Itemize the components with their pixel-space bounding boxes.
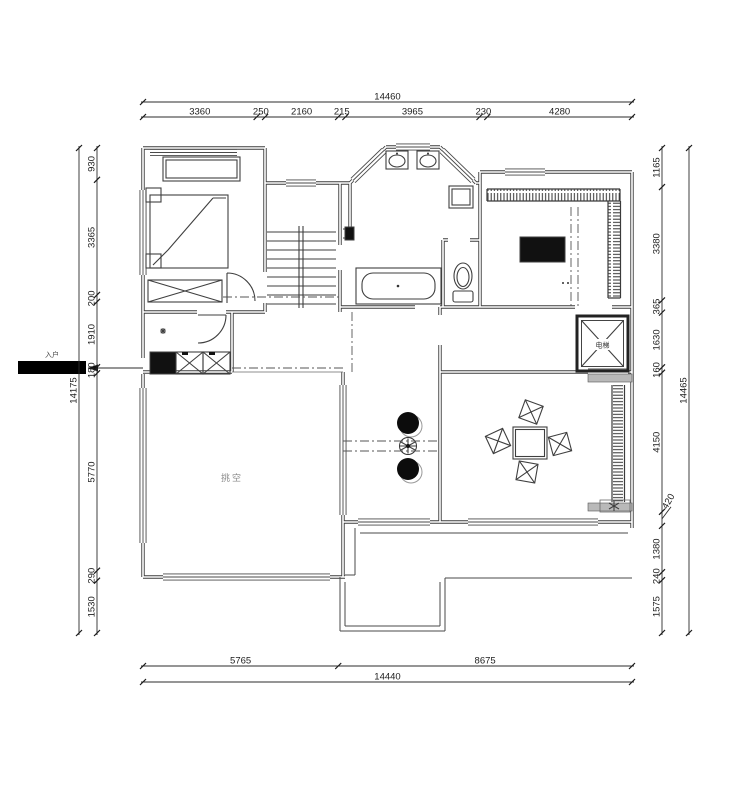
terrace-outline [232, 372, 632, 631]
potted-plant-icon [400, 438, 417, 455]
dim-value: 200 [87, 290, 98, 306]
dim-value: 930 [87, 156, 98, 172]
floor-drain-marker [160, 328, 166, 334]
media-cabinet [520, 237, 569, 284]
dim-value: 180 [87, 362, 98, 378]
dimension-chains: 3360250216021539652304280144605765867514… [69, 92, 693, 686]
dim-top-total: 14460 [140, 92, 635, 106]
dim-right-segments: 116533803651630160415042013802401575 [652, 145, 678, 636]
label-void-space: 挑空 [221, 472, 243, 483]
wall-mounted-unit [343, 227, 354, 240]
bathtub [356, 268, 441, 304]
floor-plan-page: 电梯 入户 [0, 0, 740, 788]
dim-value: 8675 [475, 656, 496, 667]
staircase [267, 226, 336, 308]
entry-arrow: 入户 [18, 350, 143, 374]
corridor-planters [397, 412, 422, 483]
dim-value: 230 [475, 107, 491, 118]
bed [146, 157, 240, 268]
dim-value: 290 [87, 568, 98, 584]
dim-value: 240 [652, 568, 663, 584]
dim-value: 1530 [87, 596, 98, 617]
dim-value: 4150 [652, 432, 663, 453]
bathroom-sinks [386, 151, 439, 169]
hatch-band-top-right [487, 189, 620, 201]
dim-value: 14175 [69, 377, 80, 403]
entry-door [198, 315, 226, 343]
dim-left-segments: 9303365200191018057702901530 [87, 145, 101, 636]
dim-value: 5770 [87, 461, 98, 482]
dim-top-segments: 3360250216021539652304280 [140, 107, 635, 121]
dim-value: 14440 [374, 672, 400, 683]
bedroom-door [227, 273, 255, 303]
dim-bottom-total: 14440 [140, 672, 635, 686]
dim-value: 1910 [87, 324, 98, 345]
wardrobe [148, 280, 222, 302]
dim-value: 5765 [230, 656, 251, 667]
dim-value: 3360 [189, 107, 210, 118]
dim-value: 160 [652, 362, 663, 378]
curtain-sill-bars [588, 374, 632, 511]
dim-value: 2160 [291, 107, 312, 118]
label-entry: 入户 [45, 350, 59, 359]
dim-value: 3965 [402, 107, 423, 118]
dim-value: 1380 [652, 538, 663, 559]
table-set [485, 400, 571, 483]
entry-bar [18, 361, 86, 374]
dim-value: 14460 [374, 92, 400, 103]
dim-value: 1575 [652, 596, 663, 617]
walls [143, 147, 632, 577]
dim-value: 420 [660, 492, 677, 511]
toilet [453, 263, 473, 302]
dim-value: 14465 [679, 377, 690, 403]
dim-bottom-segments: 57658675 [140, 656, 635, 670]
dim-value: 250 [253, 107, 269, 118]
floor-plan-svg: 电梯 入户 [0, 0, 740, 788]
hatch-band-right-upper [608, 201, 621, 298]
dim-value: 1630 [652, 329, 663, 350]
label-elevator: 电梯 [596, 341, 610, 350]
vanity-stool [449, 186, 473, 208]
dim-value: 4280 [549, 107, 570, 118]
dim-value: 1165 [652, 157, 663, 177]
dim-left-total: 14175 [69, 145, 83, 636]
dim-value: 365 [652, 299, 663, 315]
elevator-shaft: 电梯 [577, 316, 628, 371]
hatch-band-right-lower [612, 385, 625, 502]
dim-value: 3365 [87, 227, 98, 248]
dim-value: 3380 [652, 233, 663, 254]
dim-value: 215 [334, 107, 350, 118]
dim-right-total: 14465 [679, 145, 693, 636]
